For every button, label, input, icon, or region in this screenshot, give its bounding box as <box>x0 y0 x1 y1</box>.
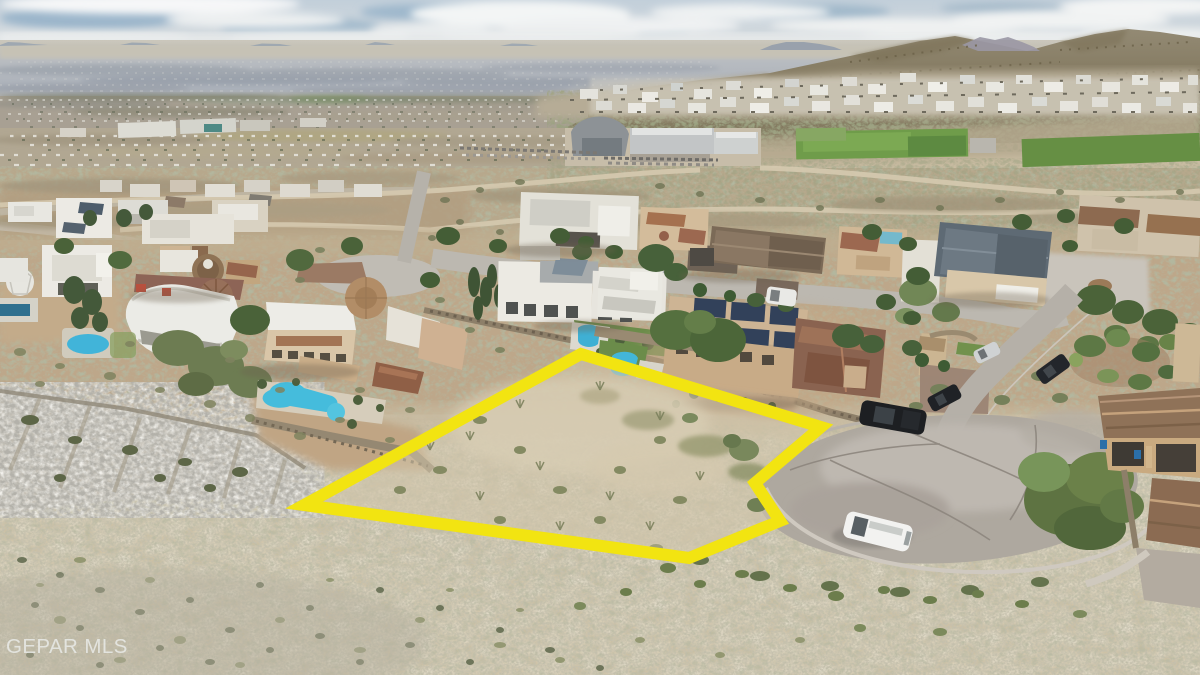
svg-text:GEPAR MLS: GEPAR MLS <box>6 635 128 658</box>
